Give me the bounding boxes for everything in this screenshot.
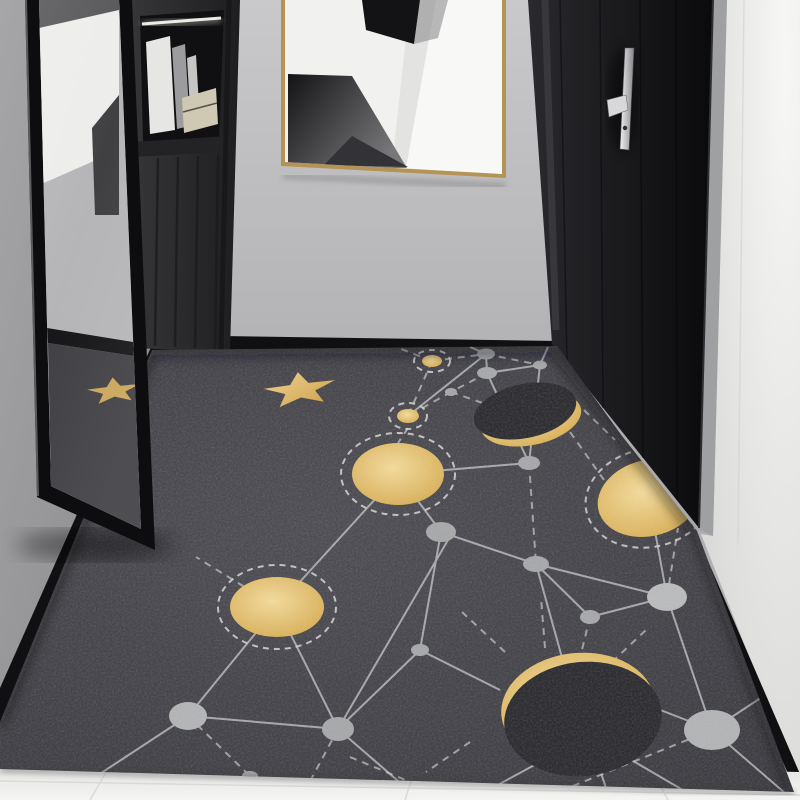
handle-keyhole — [623, 126, 627, 130]
scene-canvas — [0, 0, 800, 800]
rug-edge-shadows-shape — [152, 349, 557, 352]
artwork-canvas — [285, 0, 502, 176]
book-white — [146, 36, 175, 134]
entryway-photo — [0, 0, 800, 800]
door-panel-lines-shape — [676, 0, 677, 500]
framed-artwork — [281, 0, 506, 186]
